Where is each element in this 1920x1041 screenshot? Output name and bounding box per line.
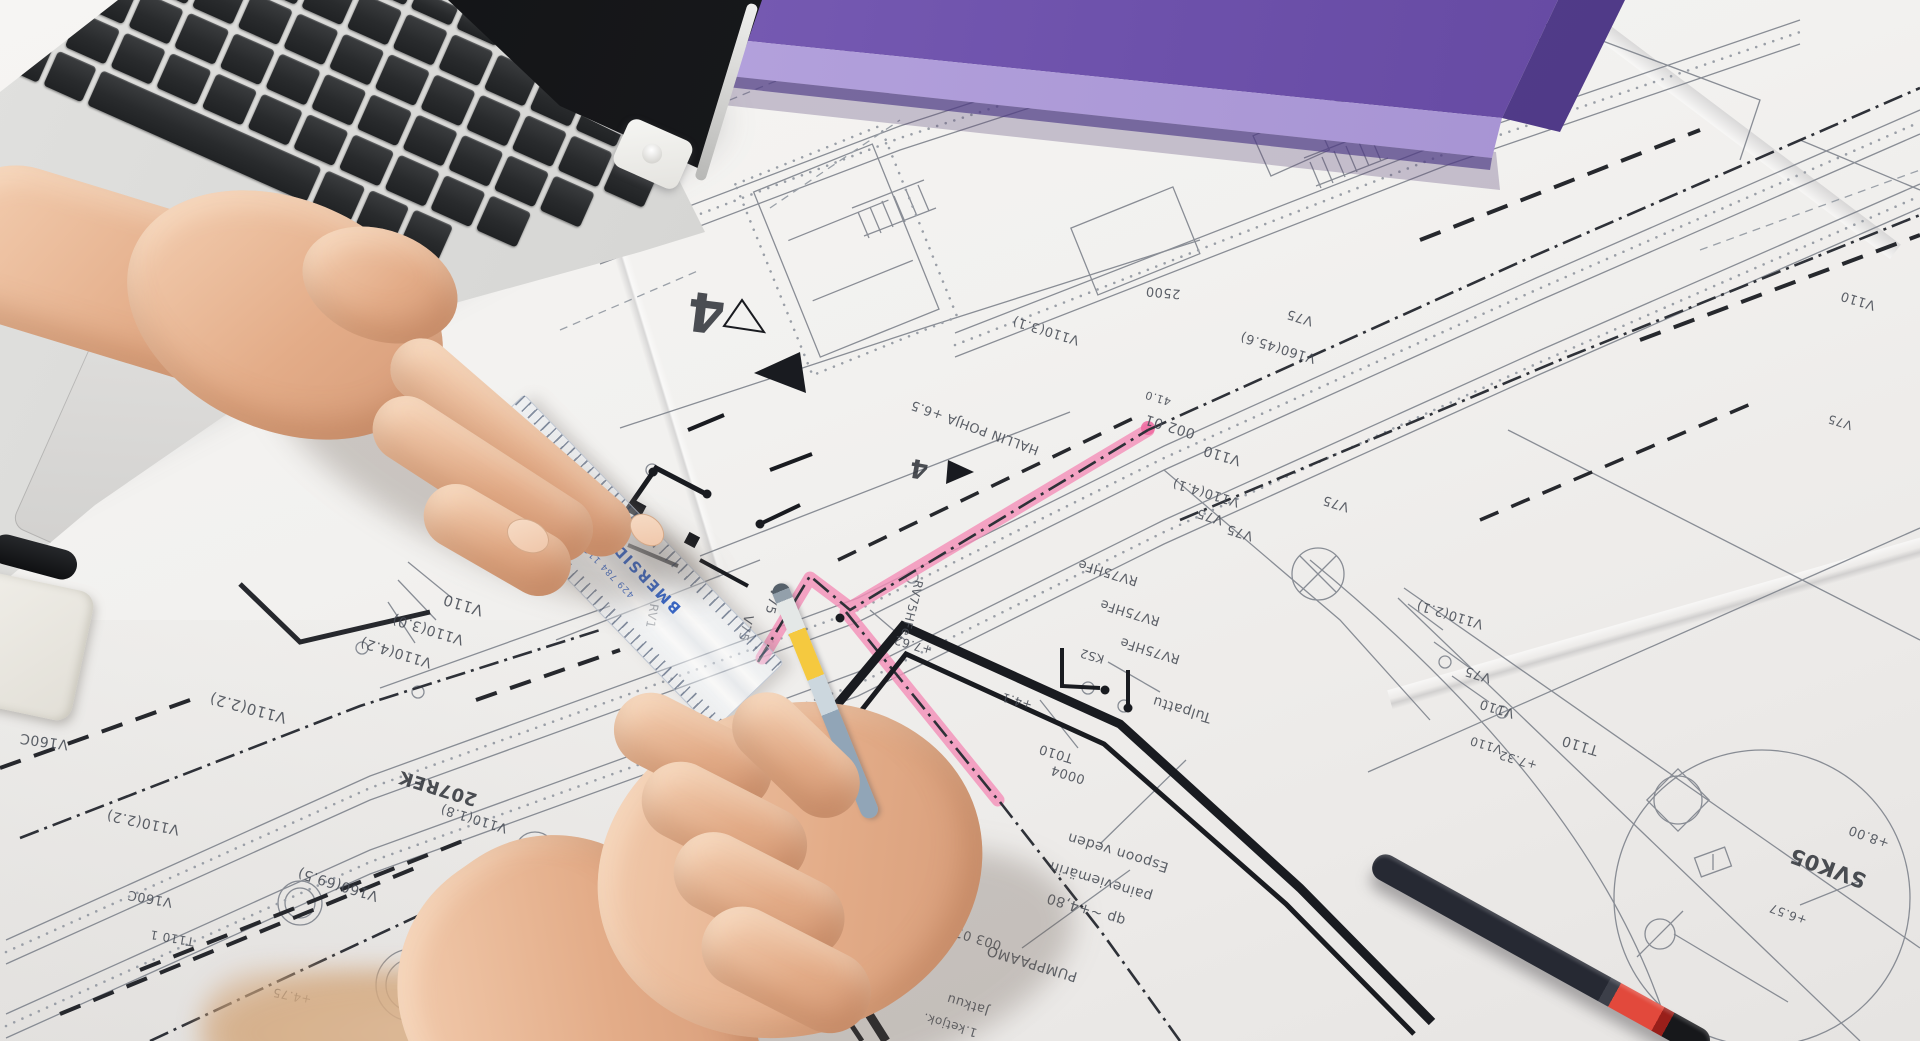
blueprint-label: V110(2.2) (208, 689, 289, 727)
blueprint-label: V160(45.6) (1239, 328, 1318, 365)
blueprint-label: V110 (441, 590, 485, 619)
blueprint-label: V110 (1839, 288, 1878, 313)
blueprint-label: V110(4.1) (1171, 475, 1241, 510)
keyboard-key (43, 51, 97, 103)
blueprint-label: V75 (1225, 521, 1255, 543)
blueprint-label: KS2 (1078, 646, 1106, 667)
blueprint-label: RV75HFe (1076, 556, 1139, 588)
blueprint-label: T110 1 (149, 927, 195, 949)
blueprint-label: +7.32 (1497, 748, 1539, 773)
blueprint-label: V110 (1201, 442, 1242, 469)
blueprint-label: V110(4.2) (358, 634, 433, 671)
blueprint-label: 207REK (396, 766, 479, 810)
blueprint-label: 002 01 (1143, 411, 1197, 442)
blueprint-label: V110(2.1) (1415, 597, 1485, 632)
blueprint-label: RV75HFe (898, 579, 925, 638)
blueprint-label: +6.57 (1767, 901, 1809, 928)
blueprint-label: Tulpattu (1151, 693, 1214, 726)
blueprint-label: V75 (1195, 505, 1225, 527)
blueprint-label: 4 (907, 452, 931, 485)
blueprint-label: V110(2.2) (105, 806, 181, 837)
blueprint-label: T110 (1560, 732, 1600, 758)
blueprint-label: V110 (1478, 696, 1517, 721)
blueprint-label: 0004 (1049, 762, 1087, 787)
photo-scene: V110(2.2)V110(2.2)V110V110(3.0)V110(4.2)… (0, 0, 1920, 1041)
blueprint-label: +8.00 (1847, 822, 1892, 851)
blueprint-label: 2500 (1145, 283, 1181, 301)
blueprint-label: V75 (1285, 306, 1315, 328)
blueprint-label: HALLIN POHJA +6.5 (909, 397, 1041, 457)
blueprint-label: +4.1 (1000, 690, 1034, 712)
blueprint-label: V75 (1826, 412, 1854, 433)
blueprint-label: V110(3.1) (1011, 313, 1081, 348)
blueprint-label: RV75HFe (1098, 596, 1161, 628)
blueprint-label: 4 (683, 278, 728, 345)
blueprint-label: V160C (19, 730, 69, 753)
blueprint-label: RV75HFe (1118, 634, 1181, 666)
blueprint-label: V110(3.0) (390, 611, 465, 648)
blueprint-label: +7.62 (892, 633, 934, 658)
blueprint-label: V160C (126, 887, 173, 910)
blueprint-label: V160(69.5) (296, 864, 380, 904)
blueprint-label: SVK05 (1787, 843, 1870, 893)
blueprint-label: V75 (1321, 492, 1351, 514)
blueprint-label: 41.0 (1143, 388, 1172, 408)
blueprint-label: V75 (1463, 663, 1493, 685)
